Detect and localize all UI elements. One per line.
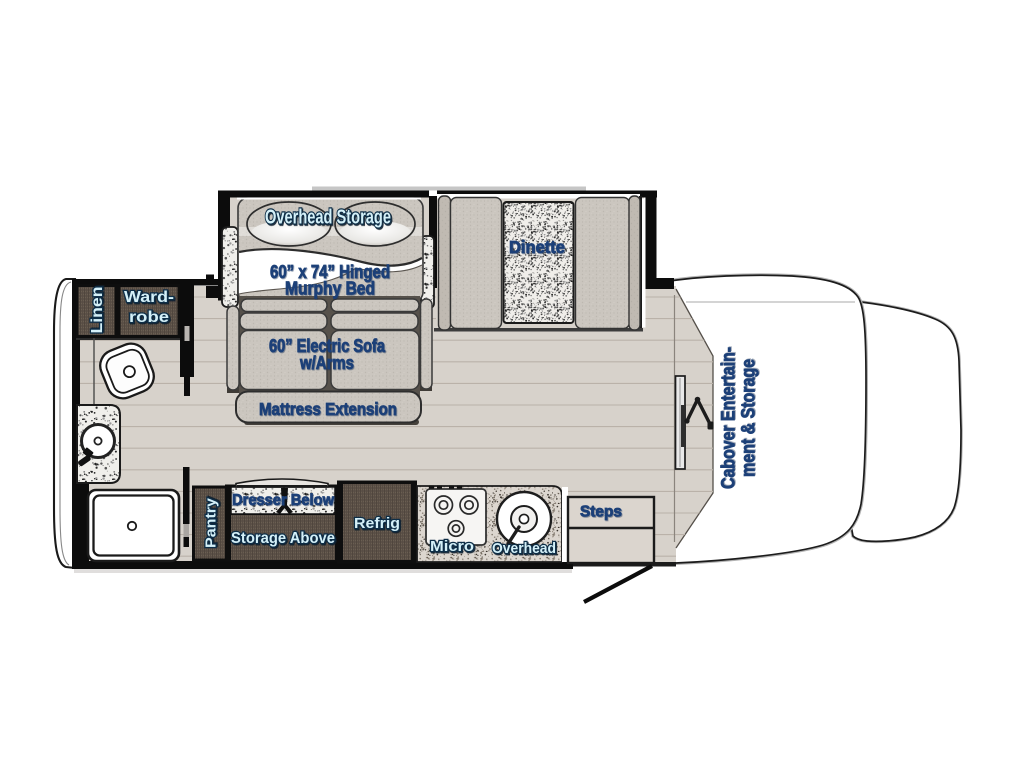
svg-text:Murphy Bed: Murphy Bed (285, 279, 375, 299)
svg-text:Ward-: Ward- (124, 289, 174, 306)
svg-text:Micro: Micro (430, 538, 474, 555)
svg-text:Overhead: Overhead (492, 540, 556, 557)
svg-text:ment & Storage: ment & Storage (739, 359, 760, 477)
svg-text:Refrig: Refrig (354, 515, 400, 532)
svg-text:Mattress Extension: Mattress Extension (259, 399, 397, 419)
svg-text:Steps: Steps (580, 504, 622, 521)
svg-text:Dresser Below: Dresser Below (232, 492, 335, 509)
svg-text:Pantry: Pantry (204, 498, 220, 548)
svg-text:Storage Above: Storage Above (231, 530, 335, 547)
svg-text:Dinette: Dinette (509, 237, 565, 257)
svg-text:Linen: Linen (89, 287, 106, 334)
svg-text:Overhead Storage: Overhead Storage (265, 207, 391, 229)
svg-text:w/Arms: w/Arms (299, 353, 354, 373)
svg-text:Cabover Entertain-: Cabover Entertain- (719, 347, 740, 489)
svg-text:robe: robe (129, 309, 169, 326)
